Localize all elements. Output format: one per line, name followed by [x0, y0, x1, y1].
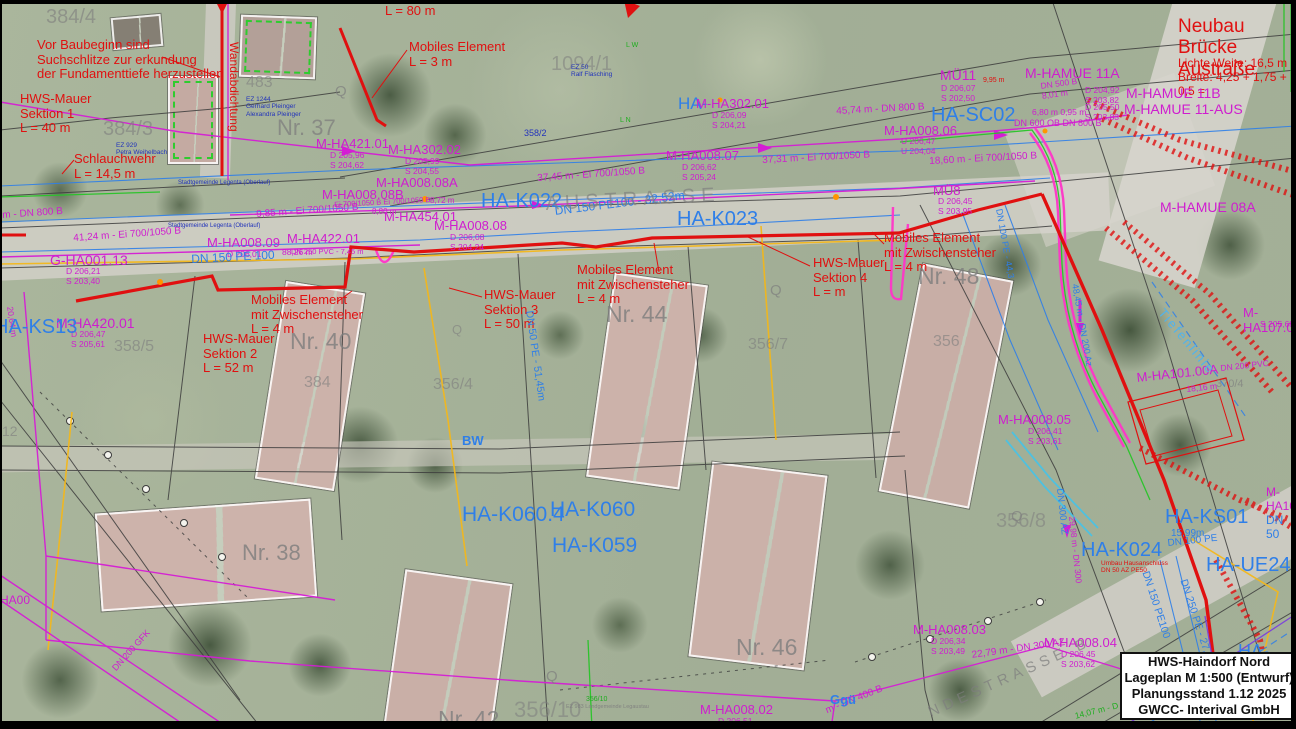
map-label: HA-K024 — [1081, 539, 1162, 562]
map-label: HA-K023 — [677, 208, 758, 231]
map-label: Q — [452, 323, 462, 338]
map-label: 483 — [246, 74, 273, 92]
site-plan-screenshot: Vor Baubeginn sind Suchschlitze zur erku… — [0, 0, 1296, 729]
map-label: m - DN 800 B — [2, 206, 63, 221]
bw-label: BW — [462, 434, 484, 449]
map-label: D 206,45 S 203,95 — [938, 197, 973, 216]
mobiles-element-3m: Mobiles Element L = 3 m — [409, 40, 505, 69]
map-label: 45,74 m - DN 800 B — [836, 101, 925, 117]
map-label: Nr. 46 — [736, 634, 797, 660]
map-label: 370/4 — [1216, 378, 1244, 390]
map-label: M-HAMUE 08A — [1160, 200, 1256, 216]
map-label: D 205,96 S 204,62 — [330, 151, 365, 170]
map-label: HA-UE24 — [1206, 554, 1290, 577]
map-label: MÜ11 — [940, 68, 976, 84]
map-label: D 206,34 S 203,49 — [931, 637, 966, 656]
map-label: DN 150 PE 100 — [191, 249, 275, 267]
ggue-label: Ggü — [830, 693, 856, 708]
map-label: M-HA422.01 — [287, 232, 360, 247]
map-label: Stadtgemeinde Legenta (Oberlauf) — [168, 223, 260, 230]
map-label: 356/7 — [748, 336, 788, 354]
title-block-status: Planungsstand 1.12 2025 — [1132, 686, 1287, 702]
map-label: 6,80 m 0,95 m — [1032, 108, 1086, 118]
map-label: DN 500 B 8,01 m — [1040, 77, 1079, 101]
map-label: EZ 929 Petra Weihelbach — [116, 142, 167, 157]
map-label: S 205,68 — [1260, 320, 1294, 330]
map-label: Nr. 44 — [606, 301, 667, 327]
map-label: 37,31 m - Ei 700/1050 B — [762, 149, 870, 166]
map-label: D 206,41 S 203,61 — [1028, 427, 1063, 446]
map-label: D 206,08 S 204,24 — [450, 233, 485, 252]
map-label: 18,60 m - Ei 700/1050 B — [929, 150, 1037, 167]
map-label: DN 600 OB DN 800 B — [1014, 118, 1102, 128]
map-label: 48,45 m - DN 200 Az — [1070, 283, 1095, 367]
hws-mauer-sektion-3: HWS-Mauer Sektion 3 L = 50 m — [484, 288, 556, 332]
map-label: EZ 983 Landgemeinde Legaustau — [566, 704, 649, 710]
map-label: Nr. 40 — [290, 328, 351, 354]
map-label: HA00 — [0, 594, 30, 608]
map-label: Nr. 38 — [242, 541, 301, 566]
note-suchschlitze: Vor Baubeginn sind Suchschlitze zur erku… — [37, 38, 223, 82]
map-label: 356 — [933, 333, 960, 351]
map-label: EZ 1244 Gerhard Pleinger Alexandra Plein… — [246, 96, 301, 118]
map-label: 37,45 m - Ei 700/1050 B — [537, 165, 645, 184]
map-label: EZ 50 Ralf Flasching — [571, 64, 612, 79]
title-block-company: GWCC- Interival GmbH — [1138, 702, 1280, 718]
map-label: DN 200 GFK — [110, 628, 152, 673]
map-label: HA-K060 — [550, 498, 635, 522]
map-label: Q — [335, 84, 347, 101]
map-label: L W — [626, 42, 638, 50]
frame-left — [0, 0, 2, 729]
map-label: U 206,47 U 204,04 — [901, 137, 936, 156]
map-label: Stadtgemeinde Legenta (Oberlauf) — [178, 180, 270, 187]
map-label: D 206,09 S 204,21 — [712, 111, 747, 130]
map-label: 8,72 m — [430, 196, 454, 205]
frame-top — [0, 0, 1296, 4]
map-label: 384 — [304, 374, 331, 392]
map-label: 9,85 m - Ei 700/1050 B — [256, 202, 359, 220]
hws-mauer-sektion-2: HWS-Mauer Sektion 2 L = 52 m — [203, 332, 275, 376]
map-label: HA-K059 — [552, 534, 637, 558]
wandabdichtung: Wandabdichtung — [226, 42, 240, 132]
map-label: 18,16 m — [1186, 382, 1218, 395]
annotations-layer: Vor Baubeginn sind Suchschlitze zur erku… — [0, 0, 1296, 729]
map-label: M-HAMUE 11-AUS — [1124, 102, 1243, 118]
map-label: 356/4 — [433, 376, 473, 394]
map-label: DN 150 PE100 — [1139, 570, 1172, 640]
map-label: HA-KS01 — [1165, 506, 1248, 529]
map-label: M-HAMUE 11B — [1126, 86, 1221, 102]
hws-mauer-sektion-4: HWS-Mauer Sektion 4 L = m — [813, 256, 885, 300]
title-block-project: HWS-Haindorf Nord — [1148, 654, 1270, 670]
map-label: D 206,07 S 202,50 — [941, 84, 976, 103]
hws-mauer-sektion-1: HWS-Mauer Sektion 1 L = 40 m — [20, 92, 92, 136]
map-label: HA-KS13 — [0, 316, 77, 339]
wall-l80: L = 80 m — [385, 4, 435, 19]
map-label: Nr. 48 — [918, 263, 979, 289]
map-label: 384/4 — [46, 6, 96, 29]
map-label: Nr. 37 — [277, 116, 336, 141]
lichte-weite: Lichte Weite: 16,5 m — [1178, 57, 1287, 71]
frame-bottom — [0, 721, 1296, 729]
map-label: D 205,99 S 204,55 — [405, 157, 440, 176]
map-label: Q — [546, 669, 558, 686]
map-label: 384/3 — [103, 118, 153, 141]
map-label: 356/10 — [514, 698, 581, 723]
map-label: 88,26 m — [282, 248, 313, 258]
title-block: HWS-Haindorf Nord Lageplan M 1:500 (Entw… — [1120, 652, 1296, 720]
map-label: DN 100 PE - 44,3 — [994, 208, 1016, 279]
map-label: 12 — [2, 424, 18, 440]
map-label: L N — [620, 117, 631, 125]
dim-9-95: 9,95 m — [983, 77, 1004, 85]
map-label: Q — [1011, 509, 1023, 526]
umbau-hausanschluss: Umbau Hausanschluss DN 50 AZ PE50 — [1101, 560, 1168, 575]
map-label: Q — [770, 283, 782, 300]
frame-right — [1291, 0, 1296, 729]
map-label: 14,07 m - D — [1074, 701, 1119, 721]
map-label: D 206,21 S 203,40 — [66, 267, 101, 286]
map-label: 356/10 — [586, 696, 607, 704]
map-label: DN 200 PVC — [1220, 359, 1269, 374]
map-label: D 206,62 S 205,24 — [682, 163, 717, 182]
map-label: HA-SC02 — [931, 104, 1015, 127]
map-label: 358/2 — [524, 128, 547, 138]
map-label: 358/5 — [114, 338, 154, 356]
map-label: DN 300 AZ — [1053, 488, 1069, 535]
title-block-plan: Lageplan M 1:500 (Entwurf) — [1124, 670, 1293, 686]
map-label: 41,24 m - Ei 700/1050 B — [73, 225, 181, 244]
